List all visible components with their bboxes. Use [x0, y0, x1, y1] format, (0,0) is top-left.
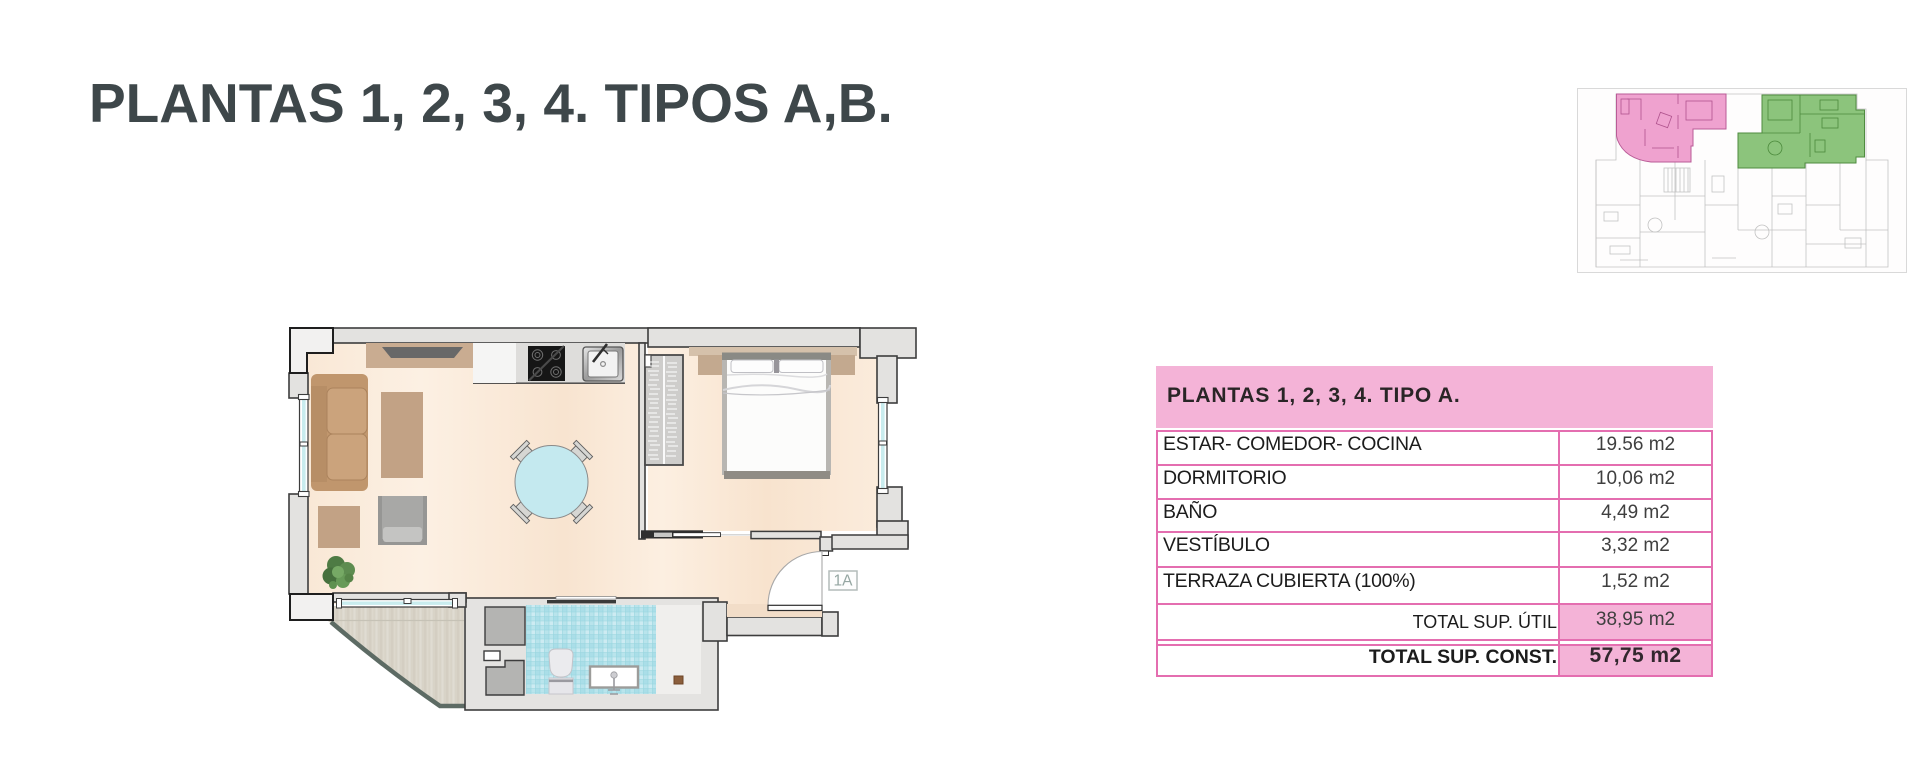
svg-text:1A: 1A	[834, 573, 854, 590]
